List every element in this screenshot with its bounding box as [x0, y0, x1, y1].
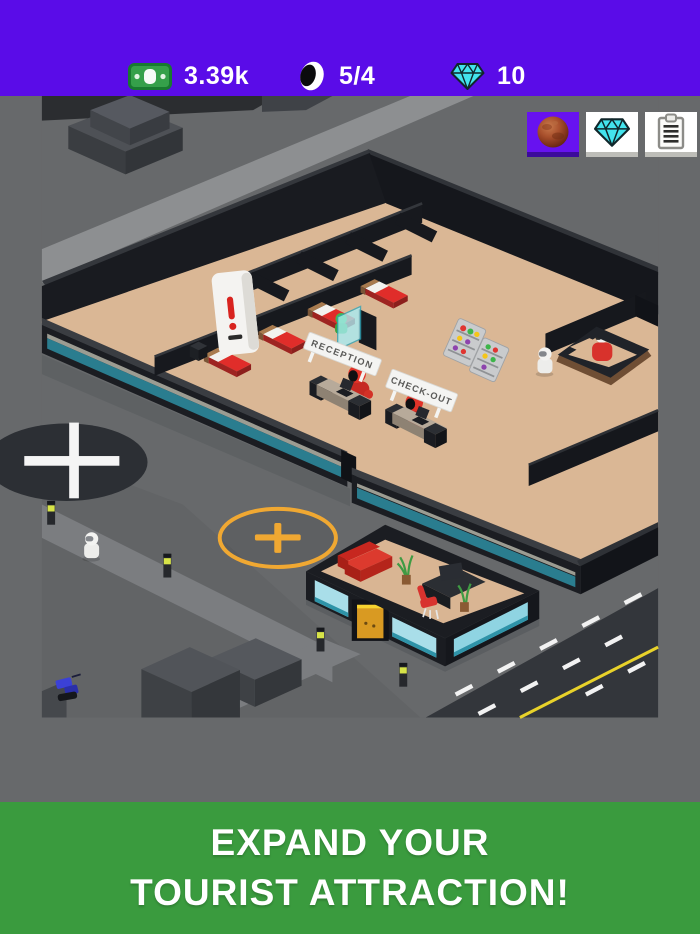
money-value: 3.39k	[184, 62, 249, 91]
astronaut-helmet-icon	[297, 59, 327, 93]
gems-counter: 10	[450, 58, 526, 94]
lobby-door	[357, 605, 383, 638]
diamond-icon	[594, 116, 630, 148]
vending-machine	[211, 270, 260, 357]
planet-button[interactable]	[527, 112, 579, 157]
diamond-icon	[450, 61, 485, 91]
mars-planet-icon	[533, 112, 573, 152]
banner-line-2: TOURIST ATTRACTION!	[130, 868, 570, 918]
tourist-capacity-counter: 5/4	[297, 58, 375, 94]
bartender-body	[592, 342, 612, 360]
clipboard-icon	[653, 113, 689, 151]
banner-line-1: EXPAND YOUR	[211, 818, 490, 868]
orders-button[interactable]	[645, 112, 697, 157]
city-scene: RECEPTION CHECK-OUT	[0, 96, 700, 802]
expand-build-spot[interactable]	[220, 509, 336, 567]
quick-buttons	[527, 112, 697, 157]
game-screen: 3.39k 5/4 10	[0, 0, 700, 934]
tourist-capacity-value: 5/4	[339, 62, 375, 91]
money-counter: 3.39k	[128, 58, 249, 94]
gems-button[interactable]	[586, 112, 638, 157]
gems-value: 10	[497, 62, 526, 91]
cash-icon	[128, 63, 172, 90]
expand-banner[interactable]: EXPAND YOUR TOURIST ATTRACTION!	[0, 802, 700, 934]
top-hud: 3.39k 5/4 10	[0, 0, 700, 96]
